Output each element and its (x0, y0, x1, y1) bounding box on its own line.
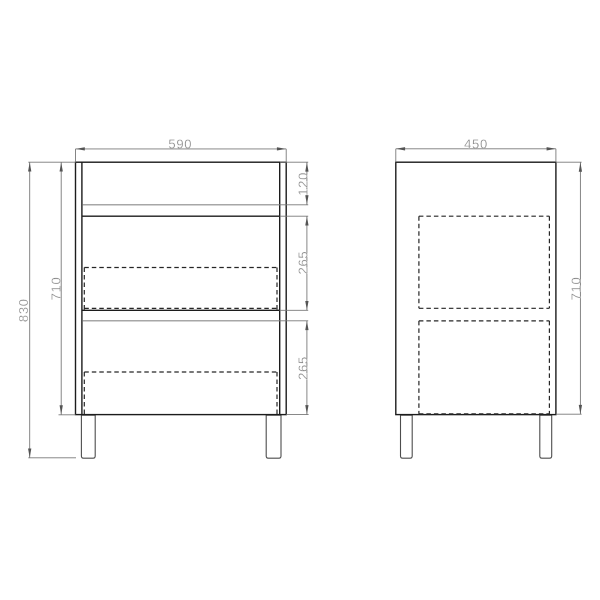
svg-text:450: 450 (464, 137, 488, 152)
svg-text:830: 830 (16, 298, 31, 322)
svg-text:265: 265 (295, 356, 310, 380)
svg-text:710: 710 (49, 277, 64, 301)
svg-text:120: 120 (295, 172, 310, 196)
svg-text:265: 265 (295, 251, 310, 275)
svg-text:590: 590 (168, 137, 192, 152)
svg-text:710: 710 (569, 277, 584, 301)
